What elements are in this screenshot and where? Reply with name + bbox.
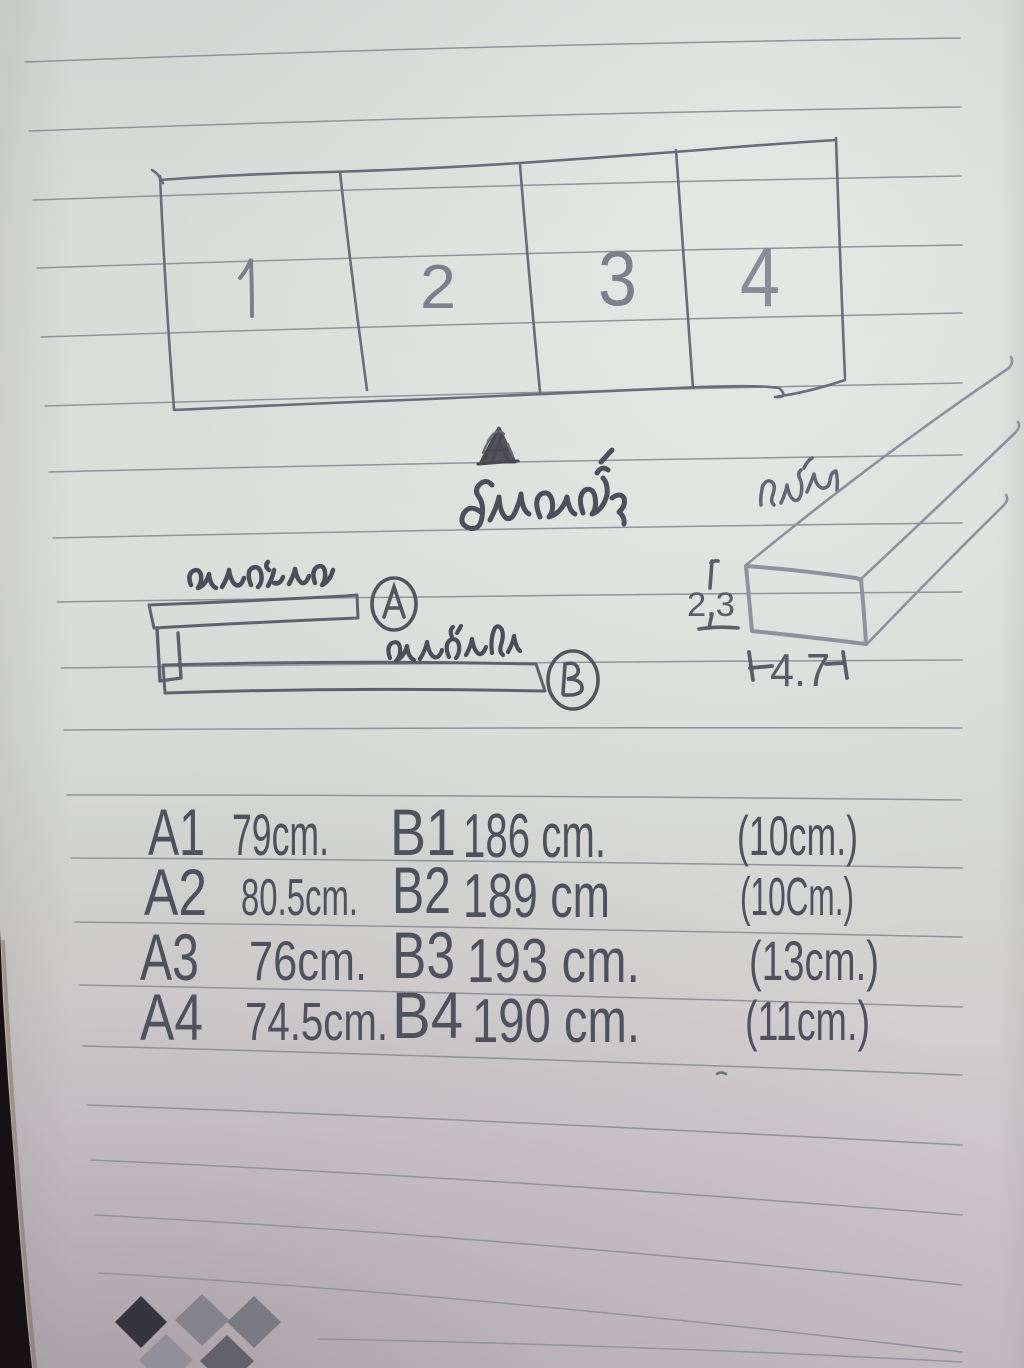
svg-text:80.5cm.: 80.5cm. — [241, 869, 358, 927]
svg-text:B4: B4 — [392, 978, 463, 1052]
svg-text:(10cm.): (10cm.) — [737, 804, 858, 867]
svg-text:2: 2 — [420, 253, 456, 322]
svg-text:190 cm.: 190 cm. — [472, 987, 640, 1056]
svg-text:193 cm.: 193 cm. — [467, 927, 640, 996]
svg-text:(10Cm.): (10Cm.) — [740, 867, 854, 927]
svg-text:4: 4 — [740, 230, 780, 324]
svg-text:186 cm.: 186 cm. — [463, 802, 606, 871]
svg-text:A2: A2 — [144, 855, 207, 929]
svg-text:4.7: 4.7 — [770, 644, 830, 696]
svg-text:189 cm: 189 cm — [463, 862, 610, 931]
svg-text:76cm.: 76cm. — [249, 929, 367, 992]
svg-text:79cm.: 79cm. — [232, 803, 329, 868]
svg-text:(13cm.): (13cm.) — [749, 929, 879, 992]
svg-text:74.5cm.: 74.5cm. — [245, 992, 388, 1052]
svg-text:(11cm.): (11cm.) — [745, 989, 870, 1052]
svg-text:3: 3 — [598, 234, 637, 322]
svg-text:A4: A4 — [140, 980, 203, 1054]
svg-text:B2: B2 — [392, 853, 451, 927]
